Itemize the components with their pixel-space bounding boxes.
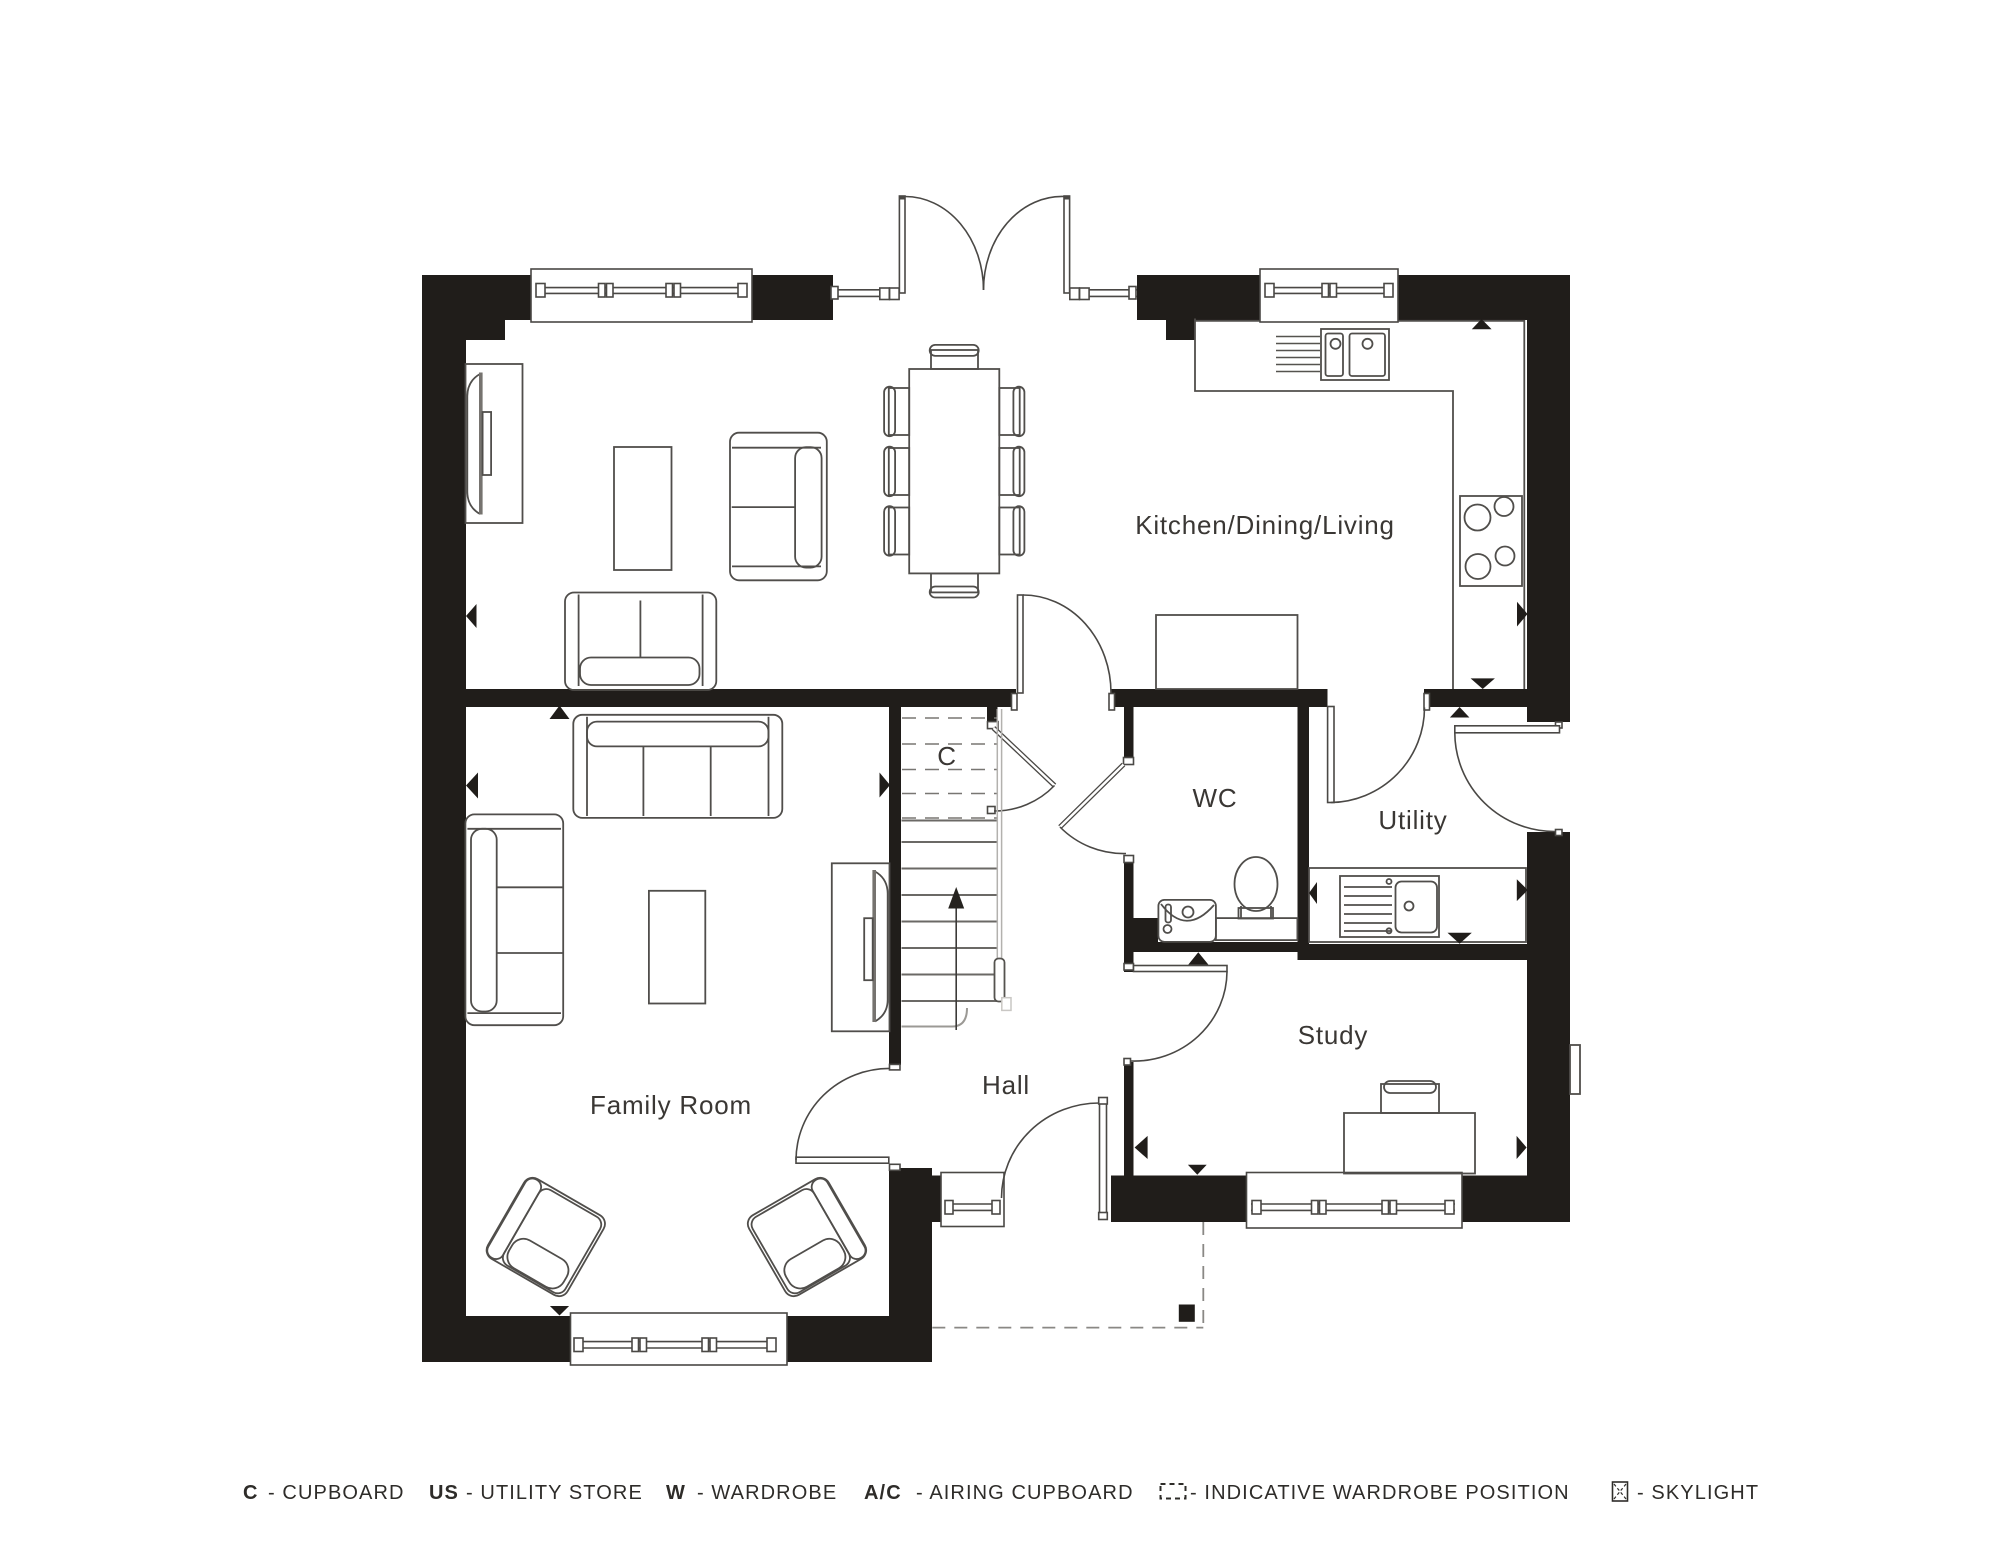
svg-text:- INDICATIVE WARDROBE POSITION: - INDICATIVE WARDROBE POSITION	[1190, 1482, 1570, 1504]
svg-text:Family Room: Family Room	[590, 1090, 752, 1120]
svg-text:W: W	[666, 1482, 686, 1504]
svg-text:- UTILITY STORE: - UTILITY STORE	[466, 1482, 643, 1504]
svg-text:- WARDROBE: - WARDROBE	[697, 1482, 837, 1504]
svg-text:US: US	[429, 1482, 459, 1504]
svg-text:WC: WC	[1193, 783, 1238, 813]
svg-text:C: C	[243, 1482, 259, 1504]
svg-text:- SKYLIGHT: - SKYLIGHT	[1637, 1482, 1759, 1504]
svg-text:- AIRING CUPBOARD: - AIRING CUPBOARD	[916, 1482, 1134, 1504]
svg-text:- CUPBOARD: - CUPBOARD	[268, 1482, 405, 1504]
svg-text:C: C	[937, 741, 957, 771]
svg-text:Utility: Utility	[1378, 805, 1447, 835]
svg-text:Kitchen/Dining/Living: Kitchen/Dining/Living	[1135, 510, 1395, 540]
svg-text:Hall: Hall	[982, 1070, 1030, 1100]
svg-text:Study: Study	[1298, 1020, 1369, 1050]
svg-text:A/C: A/C	[864, 1482, 902, 1504]
